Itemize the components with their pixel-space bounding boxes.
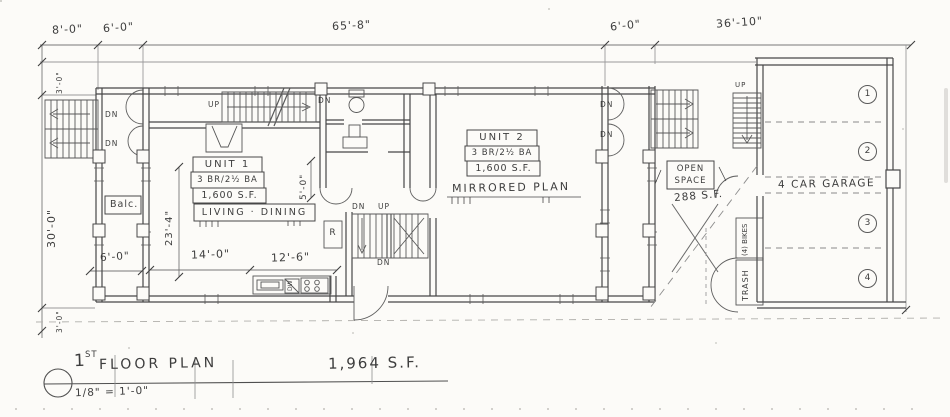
dim-left-bottom-offset: 3'-0" [56,310,64,333]
dim-top-5: 36'-10" [716,15,764,29]
dim-top-2: 6'-0" [103,21,135,34]
garage-label: 4 CAR GARAGE [778,178,875,190]
living-dining-label: LIVING · DINING [194,208,315,218]
dim-top-1: 8'-0" [52,23,84,36]
stairs-left-exterior [45,100,98,158]
sink-top [349,125,360,137]
open-space-word1: OPEN [667,165,714,174]
garage-stall-4: 4 [858,269,877,288]
dim-top-4: 6'-0" [610,18,642,32]
dim-living-depth: 23'-4" [165,210,175,246]
dn-label-center-stair-2: DN [377,259,390,267]
columns [93,83,655,300]
dn-label-entry-stair: DN [318,97,331,105]
fridge-label: R [324,229,342,238]
dim-left-top-offset: 3'-0" [56,71,64,94]
garage-stall-2: 2 [858,142,877,161]
sink-base [343,137,367,148]
unit2-config: 3 BR/2½ BA [465,149,539,158]
plan-linework [0,0,950,417]
dimension-lines [15,45,946,409]
unit1-name: UNIT 1 [193,160,262,170]
unit2-name: UNIT 2 [467,133,537,143]
dim-balcony: 6'-0" [100,251,131,264]
dim-top-3: 65'-8" [332,19,372,32]
bike-storage-label: (4) BIKES [742,224,749,256]
unit1-area: 1,600 S.F. [193,191,266,201]
dim-stair-hall: 5'-0" [300,174,309,200]
garage-stall-1: 1 [858,85,877,104]
dim-kitchen-width: 12'-6" [271,251,310,263]
stairs-center [352,214,428,258]
dn-label-unit2-stair-2: DN [600,131,613,139]
dishwasher-label: DW [288,280,294,291]
total-area: 1,964 S.F. [328,355,421,372]
up-label-entry-stair: UP [208,101,220,109]
open-space-word2: SPACE [667,177,714,186]
dn-label-left-stair-2: DN [105,140,118,148]
dn-label-left-stair-1: DN [105,111,118,119]
floor-plan-sheet: 8'-0" 6'-0" 65'-8" 6'-0" 36'-10" 30'-0" … [0,0,950,417]
scan-smudge [944,88,948,183]
balcony-label: Balc. [110,200,138,210]
unit2-area: 1,600 S.F. [467,164,540,174]
dn-label-unit2-stair-1: DN [600,101,613,109]
unit1-config: 3 BR/2½ BA [191,176,264,185]
title-scale: 1/8" = 1'-0" [75,386,149,399]
paper-specks [0,0,2,2]
window-ticks [94,86,657,304]
stairs-unit2 [651,90,698,148]
title-bubble [44,369,72,397]
toilet-bowl [349,98,364,113]
dn-label-center-stair: DN [352,203,365,211]
dim-left-main: 30'-0" [46,209,57,248]
garage-stall-3: 3 [858,214,877,233]
dim-living-width: 14'-0" [191,248,230,260]
title-number-suffix: ST [85,351,98,360]
page-title: FLOOR PLAN [99,356,217,372]
up-label-garage-stair: UP [735,82,746,89]
mirrored-underline [447,197,581,204]
mirrored-plan-note: MIRRORED PLAN [452,181,570,194]
up-label-center-stair: UP [378,203,390,211]
trash-label: TRASH [742,269,750,301]
fireplace [206,124,242,152]
